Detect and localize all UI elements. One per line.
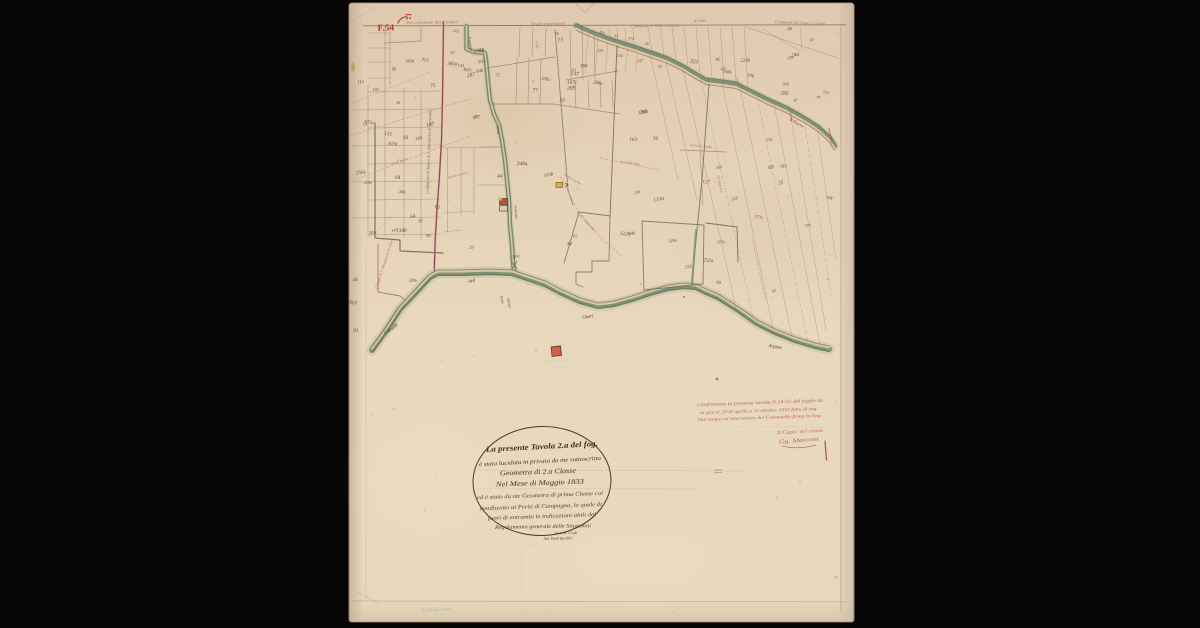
svg-text:363b: 363b: [405, 58, 415, 63]
svg-text:64: 64: [395, 174, 401, 181]
svg-text:337a: 337a: [716, 239, 724, 244]
svg-text:Colli di castro: Colli di castro: [423, 607, 452, 613]
svg-text:95: 95: [658, 64, 662, 69]
svg-text:74: 74: [816, 95, 820, 100]
svg-text:82: 82: [573, 233, 577, 238]
svg-text:81: 81: [353, 328, 359, 334]
svg-text:134b: 134b: [396, 227, 407, 234]
svg-text:184: 184: [580, 62, 588, 69]
svg-text:Geom di 1 Clafe: Geom di 1 Clafe: [555, 531, 578, 535]
svg-text:F.54: F.54: [377, 22, 394, 33]
svg-text:224b: 224b: [740, 59, 750, 64]
svg-text:167: 167: [779, 163, 787, 169]
svg-text:329b: 329b: [668, 238, 677, 244]
svg-text:155: 155: [685, 265, 693, 271]
svg-text:375: 375: [804, 223, 811, 228]
svg-text:307a: 307a: [388, 142, 398, 147]
svg-text:335: 335: [715, 164, 722, 170]
svg-text:122b: 122b: [620, 231, 631, 238]
svg-text:111: 111: [571, 67, 576, 72]
svg-text:93: 93: [426, 234, 431, 239]
svg-text:309c: 309c: [408, 278, 417, 284]
svg-text:131: 131: [384, 131, 393, 138]
svg-text:44: 44: [497, 172, 503, 179]
svg-text:64: 64: [410, 213, 416, 220]
svg-text:289: 289: [567, 85, 576, 91]
svg-text:41: 41: [771, 289, 776, 294]
svg-text:46: 46: [353, 277, 359, 283]
svg-text:321: 321: [689, 59, 699, 66]
svg-text:272: 272: [628, 36, 635, 41]
svg-text:135: 135: [457, 63, 465, 69]
svg-text:25: 25: [778, 180, 784, 187]
svg-text:Ant. Paoli fig 1833: Ant. Paoli fig 1833: [542, 536, 572, 541]
svg-text:118a: 118a: [364, 180, 372, 185]
svg-text:44: 44: [614, 33, 618, 38]
svg-text:Comunale di Valle e Campi: Comunale di Valle e Campi: [631, 23, 680, 29]
svg-text:45a: 45a: [599, 30, 606, 35]
svg-text:95: 95: [715, 58, 721, 63]
svg-text:Strada: Strada: [496, 125, 501, 134]
svg-text:193: 193: [372, 87, 379, 92]
svg-text:259: 259: [597, 48, 604, 53]
svg-text:di Valle: di Valle: [694, 18, 706, 23]
svg-text:Via comunale degli argini: Via comunale degli argini: [406, 19, 459, 25]
svg-text:167c: 167c: [567, 80, 578, 86]
svg-text:Strada traversagna: Strada traversagna: [531, 21, 566, 27]
svg-text:348a: 348a: [516, 160, 528, 167]
svg-text:256c: 256c: [356, 169, 367, 176]
svg-text:385a: 385a: [447, 62, 458, 68]
svg-text:69: 69: [768, 165, 774, 171]
svg-text:285: 285: [780, 91, 789, 98]
svg-text:252a: 252a: [703, 258, 714, 264]
svg-text:53: 53: [479, 48, 485, 53]
svg-text:305: 305: [782, 82, 790, 87]
svg-text:163: 163: [629, 136, 638, 143]
